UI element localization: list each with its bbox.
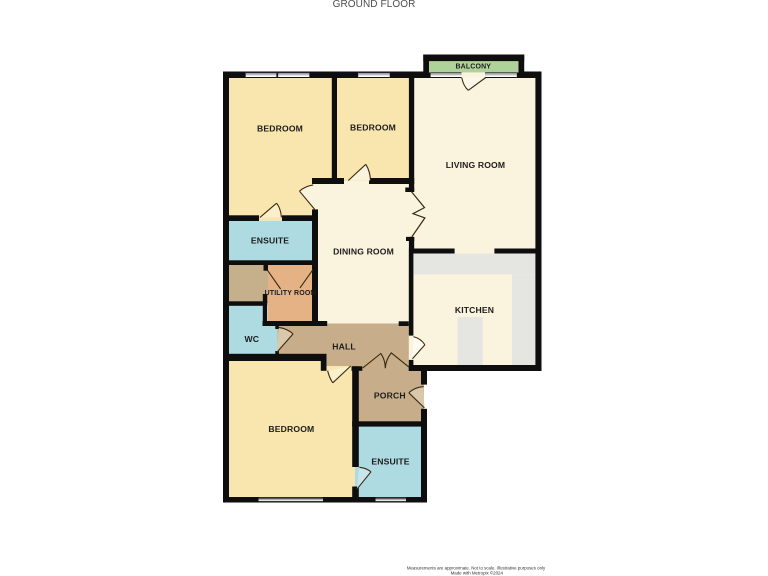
svg-text:DINING ROOM: DINING ROOM <box>333 247 394 257</box>
svg-text:ENSUITE: ENSUITE <box>251 236 289 246</box>
svg-text:Made with Metropix ©2024: Made with Metropix ©2024 <box>451 571 504 576</box>
svg-text:KITCHEN: KITCHEN <box>455 305 494 315</box>
svg-text:WC: WC <box>244 334 259 344</box>
svg-text:GROUND FLOOR: GROUND FLOOR <box>333 0 416 10</box>
svg-text:BALCONY: BALCONY <box>455 63 491 70</box>
svg-text:PORCH: PORCH <box>374 390 406 400</box>
svg-text:BEDROOM: BEDROOM <box>257 124 303 134</box>
svg-text:ENSUITE: ENSUITE <box>371 456 409 466</box>
svg-text:UTILITY ROOM: UTILITY ROOM <box>265 290 317 297</box>
svg-text:LIVING ROOM: LIVING ROOM <box>446 160 505 170</box>
svg-text:BEDROOM: BEDROOM <box>268 424 314 434</box>
svg-text:BEDROOM: BEDROOM <box>350 123 396 133</box>
svg-text:HALL: HALL <box>332 341 356 351</box>
